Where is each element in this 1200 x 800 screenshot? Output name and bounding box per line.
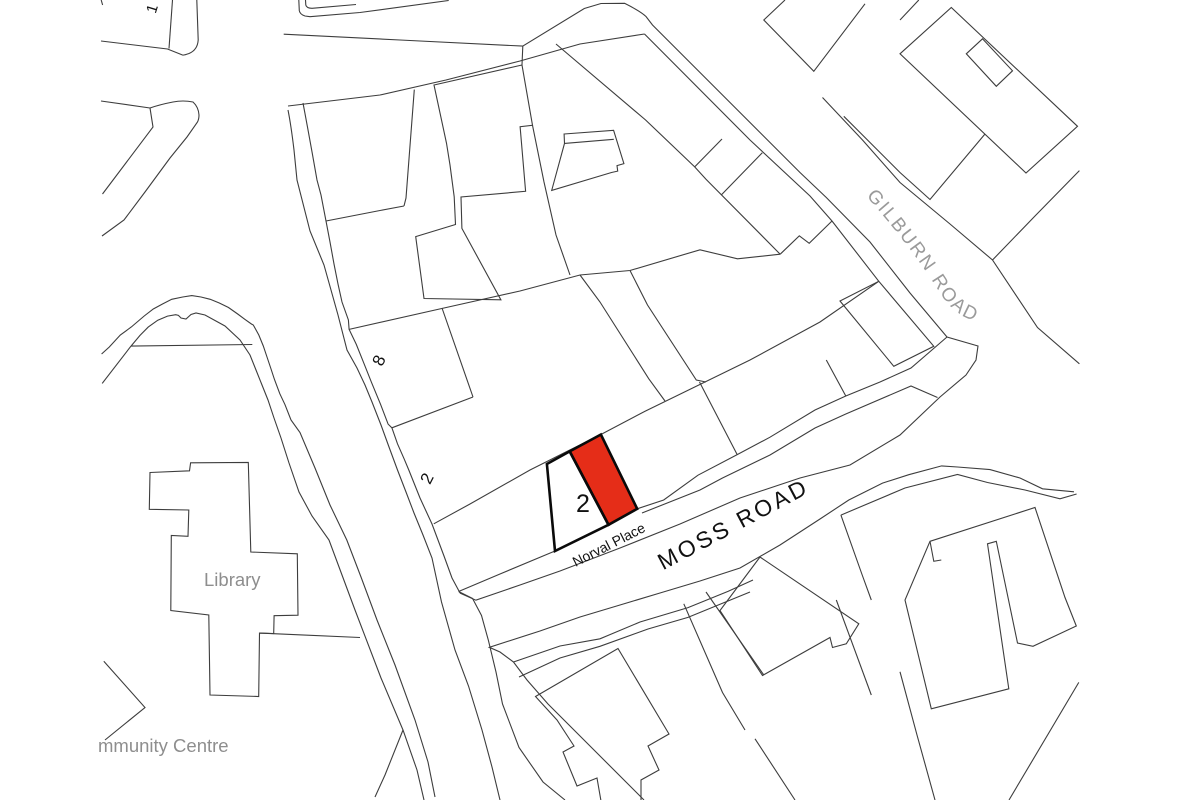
svg-text:2: 2 [576,490,590,518]
svg-text:mmunity Centre: mmunity Centre [98,735,229,756]
svg-text:Library: Library [204,569,261,590]
